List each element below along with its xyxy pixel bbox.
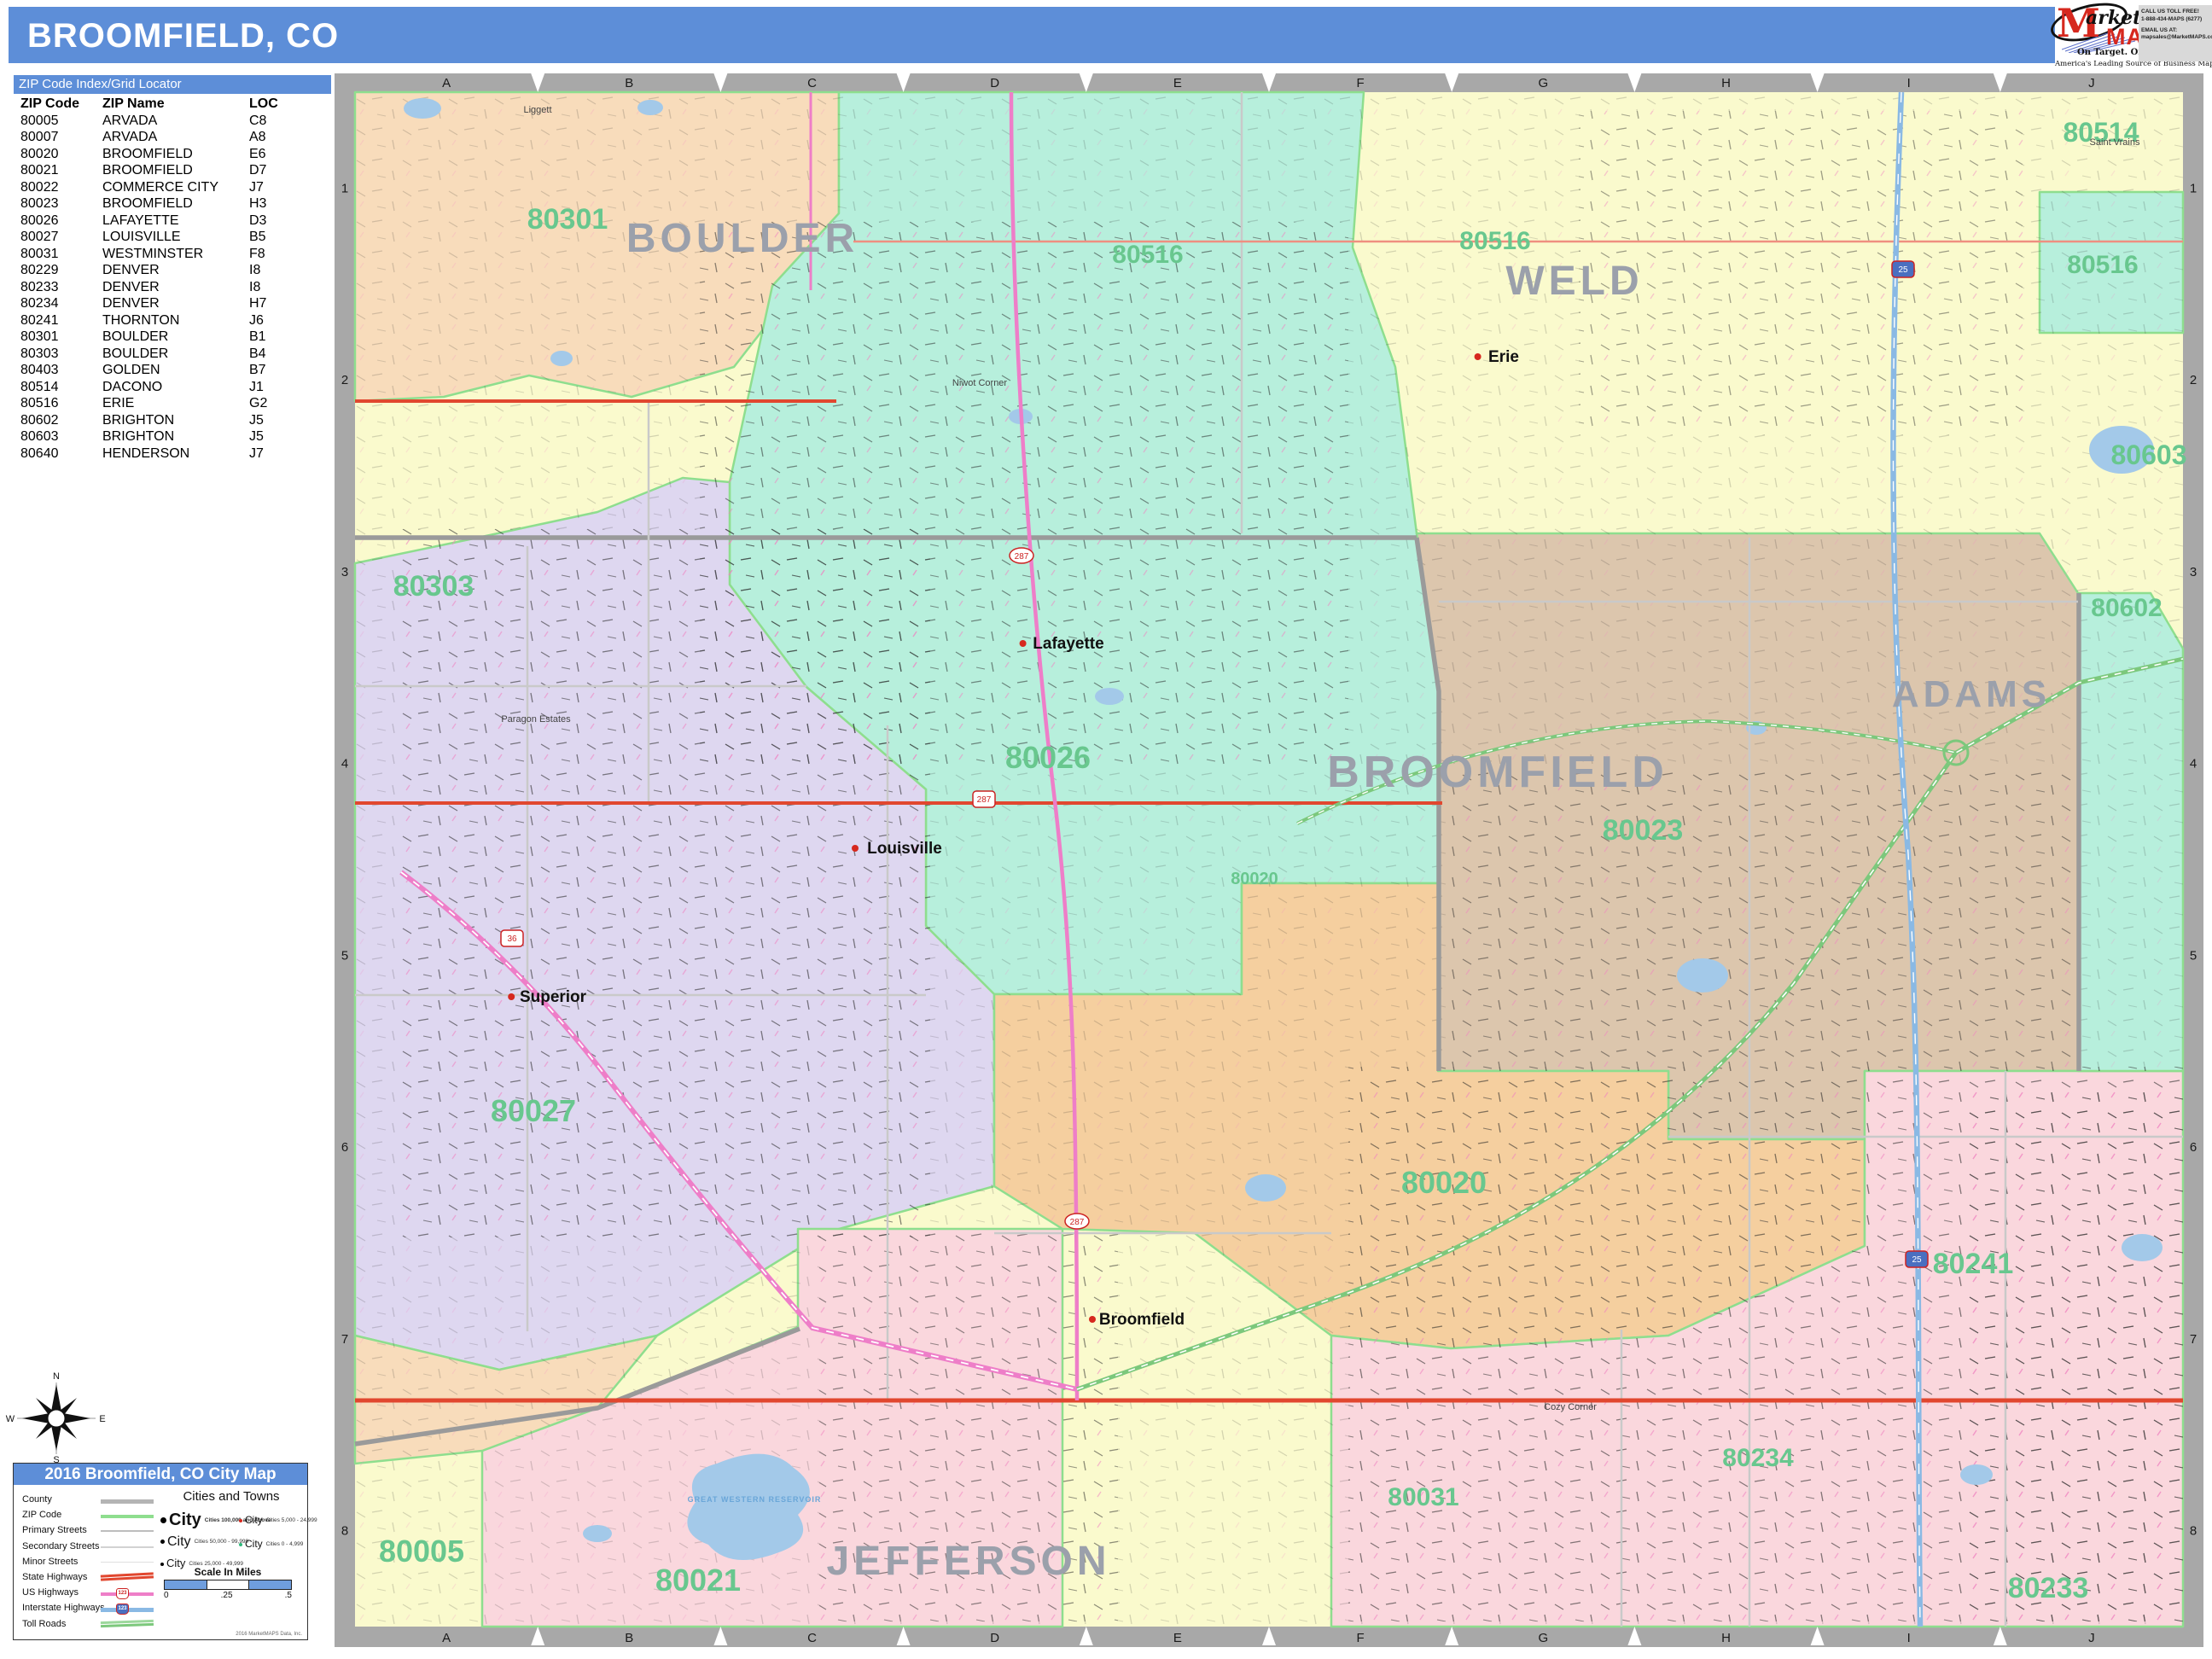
zip-index-row: 80022COMMERCE CITYJ7 — [20, 179, 328, 196]
zip-index-row: 80603BRIGHTONJ5 — [20, 428, 328, 445]
page-title: BROOMFIELD, CO — [27, 17, 339, 55]
city-dot — [852, 845, 859, 852]
email-address: mapsales@MarketMAPS.com — [2141, 34, 2212, 42]
zip-label: 80303 — [393, 570, 474, 602]
city-5k: City — [245, 1514, 263, 1526]
zip-index-row: 80514DACONOJ1 — [20, 379, 328, 396]
legend-zipcode: ZIP Code — [22, 1510, 61, 1520]
legend-box: 2016 Broomfield, CO City Map County ZIP … — [13, 1463, 308, 1640]
scale-5: .5 — [285, 1591, 292, 1600]
zip-line-sample — [101, 1515, 154, 1518]
interstate-shield-icon: 123 — [116, 1604, 129, 1615]
title-bar: BROOMFIELD, CO — [9, 7, 2055, 63]
zip-index-row: 80516ERIEG2 — [20, 395, 328, 412]
city-dot-0k — [239, 1543, 242, 1546]
col-zip-name: ZIP Name — [102, 96, 249, 113]
zip-index-row: 80020BROOMFIELDE6 — [20, 146, 328, 163]
zip-index-row: 80233DENVERI8 — [20, 279, 328, 296]
city-0k: City — [245, 1538, 263, 1550]
city-50k: City — [167, 1534, 191, 1549]
city-dot — [1089, 1316, 1096, 1323]
city-dot-25k — [160, 1563, 164, 1566]
route-number: 25 — [1912, 1255, 1922, 1265]
grid-letter-top: A — [442, 76, 451, 90]
call-label: CALL US TOLL FREE! — [2141, 9, 2212, 16]
primary-line-sample — [101, 1530, 154, 1532]
city-dot-100k — [160, 1517, 166, 1523]
grid-letter-bottom: H — [1721, 1631, 1731, 1645]
legend-minor: Minor Streets — [22, 1557, 78, 1567]
scale-25: .25 — [221, 1591, 233, 1600]
city-label: Erie — [1488, 348, 1519, 366]
cities-towns-title: Cities and Towns — [160, 1489, 302, 1504]
legend-primary: Primary Streets — [22, 1525, 87, 1535]
zip-label: 80603 — [2111, 439, 2187, 470]
zip-index-row: 80026LAFAYETTED3 — [20, 212, 328, 230]
route-number: 287 — [1015, 552, 1029, 562]
lake-label-layer: GREAT WESTERN RESERVOIR — [688, 1495, 822, 1504]
zip-index-row: 80023BROOMFIELDH3 — [20, 195, 328, 212]
grid-letter-top: G — [1538, 76, 1548, 90]
grid-letter-bottom: G — [1538, 1631, 1548, 1645]
zip-index-table: ZIP Code ZIP Name LOC 80005ARVADAC880007… — [20, 96, 328, 462]
zip-label: 80021 — [655, 1563, 741, 1598]
grid-letter-bottom: B — [625, 1631, 633, 1645]
zip-index-header: ZIP Code Index/Grid Locator — [14, 75, 331, 94]
city-label: Superior — [520, 988, 587, 1006]
grid-letter-bottom: I — [1907, 1631, 1911, 1645]
grid-letter-bottom: J — [2088, 1631, 2095, 1645]
zip-index-row: 80303BOULDERB4 — [20, 346, 328, 363]
zip-label: 80516 — [2067, 251, 2138, 279]
minor-place-label: Saint Vrains — [2090, 137, 2140, 148]
county-label: BOULDER — [626, 216, 859, 261]
grid-number-right: 1 — [2190, 181, 2197, 195]
zip-label: 80026 — [1005, 740, 1091, 775]
legend-title: 2016 Broomfield, CO City Map — [14, 1464, 307, 1485]
city-dot — [1020, 640, 1027, 647]
legend-interstate: Interstate Highways — [22, 1603, 105, 1613]
county-label: BROOMFIELD — [1327, 748, 1668, 797]
zip-label: 80241 — [1933, 1248, 2014, 1280]
zip-index-row: 80301BOULDERB1 — [20, 329, 328, 346]
city-dot — [508, 993, 515, 1000]
col-loc: LOC — [249, 96, 300, 113]
zip-label: 80516 — [1459, 227, 1530, 255]
us-hwy-sample: 123 — [101, 1592, 154, 1596]
copyright-text: 2016 MarketMAPS Data, Inc. — [236, 1632, 302, 1637]
zip-label: 80027 — [491, 1093, 576, 1128]
zip-index-row: 80602BRIGHTONJ5 — [20, 412, 328, 429]
interstate-sample: 123 — [101, 1608, 154, 1612]
zip-label: 80602 — [2091, 594, 2162, 622]
contact-box: CALL US TOLL FREE! 1-888-434-MAPS (6277)… — [2139, 5, 2212, 61]
compass-rose: N S W E — [5, 1371, 108, 1464]
grid-letter-top: E — [1173, 76, 1182, 90]
county-label: WELD — [1505, 259, 1643, 304]
grid-number-right: 8 — [2190, 1524, 2197, 1539]
grid-number-right: 3 — [2190, 565, 2197, 579]
grid-number-left: 5 — [341, 948, 348, 963]
zip-table-body: 80005ARVADAC880007ARVADAA880020BROOMFIEL… — [20, 113, 328, 463]
map-canvas[interactable]: BOULDERWELDADAMSBROOMFIELDJEFFERSON 8030… — [335, 73, 2203, 1647]
compass-n: N — [53, 1371, 60, 1382]
grid-number-right: 7 — [2190, 1332, 2197, 1347]
zip-index-row: 80229DENVERI8 — [20, 262, 328, 279]
grid-number-left: 1 — [341, 181, 348, 195]
zip-label: 80020 — [1231, 870, 1278, 888]
city-dot-5k — [239, 1519, 242, 1522]
grid-letter-bottom: E — [1173, 1631, 1182, 1645]
lake-label: GREAT WESTERN RESERVOIR — [688, 1495, 822, 1504]
route-number: 287 — [977, 795, 992, 805]
minor-line-sample — [101, 1562, 154, 1563]
city-5k-desc: Cities 5,000 - 24,999 — [266, 1517, 317, 1523]
grid-letter-top: B — [625, 76, 633, 90]
scale-0: 0 — [164, 1591, 169, 1600]
route-number: 36 — [507, 934, 517, 944]
scale-title: Scale In Miles — [164, 1566, 292, 1578]
cities-and-towns: Cities and Towns CityCities 100,000 and … — [160, 1489, 302, 1575]
toll-road-sample — [101, 1622, 154, 1627]
zip-index-row: 80021BROOMFIELDD7 — [20, 162, 328, 179]
grid-number-left: 7 — [341, 1332, 348, 1347]
zip-index-row: 80234DENVERH7 — [20, 295, 328, 312]
grid-letter-bottom: F — [1357, 1631, 1365, 1645]
route-number: 25 — [1898, 265, 1908, 275]
city-dot — [1475, 353, 1481, 360]
zip-index-row: 80031WESTMINSTERF8 — [20, 246, 328, 263]
county-label: JEFFERSON — [826, 1539, 1110, 1584]
grid-letter-bottom: D — [990, 1631, 999, 1645]
col-zip-code: ZIP Code — [20, 96, 102, 113]
zip-index-row: 80007ARVADAA8 — [20, 129, 328, 146]
minor-place-label: Cozy Corner — [1544, 1402, 1597, 1412]
grid-number-left: 6 — [341, 1140, 348, 1155]
compass-e: E — [99, 1414, 105, 1424]
zip-label: 80301 — [527, 203, 608, 236]
grid-number-left: 2 — [341, 373, 348, 387]
zip-label: 80020 — [1401, 1165, 1487, 1200]
city-label: Broomfield — [1099, 1311, 1185, 1329]
minor-place-label: Paragon Estates — [501, 714, 571, 725]
zip-index-row: 80005ARVADAC8 — [20, 113, 328, 130]
zip-label: 80516 — [1112, 241, 1183, 269]
state-hwy-sample — [101, 1575, 154, 1580]
grid-number-right: 2 — [2190, 373, 2197, 387]
grid-number-left: 3 — [341, 565, 348, 579]
grid-letter-top: I — [1907, 76, 1911, 90]
legend-line-items: County ZIP Code Primary Streets Secondar… — [22, 1493, 159, 1633]
scale-bar: Scale In Miles 0 .25 .5 — [164, 1566, 292, 1600]
compass-w: W — [6, 1414, 15, 1424]
zip-label: 80005 — [379, 1534, 464, 1569]
grid-number-left: 4 — [341, 757, 348, 771]
legend-toll: Toll Roads — [22, 1619, 66, 1629]
grid-letter-bottom: A — [442, 1631, 451, 1645]
grid-letter-bottom: C — [807, 1631, 817, 1645]
route-number: 287 — [1070, 1218, 1085, 1227]
page: { "header": { "title": "BROOMFIELD, CO" … — [0, 0, 2212, 1659]
city-100k: City — [169, 1511, 201, 1529]
zip-label: 80234 — [1722, 1444, 1794, 1472]
legend-state-hwy: State Highways — [22, 1572, 87, 1582]
county-label: ADAMS — [1892, 673, 2051, 715]
zip-index-row: 80403GOLDENB7 — [20, 362, 328, 379]
grid-number-left: 8 — [341, 1524, 348, 1539]
grid-letter-top: J — [2088, 76, 2095, 90]
grid-letter-top: H — [1721, 76, 1731, 90]
city-0k-desc: Cities 0 - 4,999 — [266, 1541, 304, 1547]
city-label: Lafayette — [1033, 635, 1103, 653]
grid-letter-top: F — [1357, 76, 1365, 90]
email-label: EMAIL US AT: — [2141, 27, 2212, 35]
zip-index-row: 80027LOUISVILLEB5 — [20, 229, 328, 246]
county-line-sample — [101, 1499, 154, 1504]
zip-label: 80031 — [1388, 1483, 1458, 1511]
city-dot-50k — [160, 1540, 165, 1544]
minor-place-label: Niwot Corner — [952, 378, 1008, 388]
legend-secondary: Secondary Streets — [22, 1541, 100, 1551]
legend-us-hwy: US Highways — [22, 1587, 79, 1598]
zip-label: 80023 — [1603, 814, 1684, 847]
minor-place-label: Liggett — [523, 105, 551, 115]
grid-letter-top: C — [807, 76, 817, 90]
phone-number: 1-888-434-MAPS (6277) — [2141, 16, 2212, 24]
secondary-line-sample — [101, 1546, 154, 1548]
zip-index-row: 80241THORNTONJ6 — [20, 312, 328, 329]
legend-county: County — [22, 1494, 52, 1505]
us-shield-icon: 123 — [116, 1588, 129, 1599]
grid-number-right: 5 — [2190, 948, 2197, 963]
zip-label: 80233 — [2008, 1572, 2089, 1604]
zip-index-row: 80640HENDERSONJ7 — [20, 445, 328, 463]
grid-number-right: 4 — [2190, 757, 2197, 771]
city-label: Louisville — [867, 840, 942, 858]
zip-index-columns: ZIP Code ZIP Name LOC — [20, 96, 328, 113]
grid-number-right: 6 — [2190, 1140, 2197, 1155]
grid-letter-top: D — [990, 76, 999, 90]
